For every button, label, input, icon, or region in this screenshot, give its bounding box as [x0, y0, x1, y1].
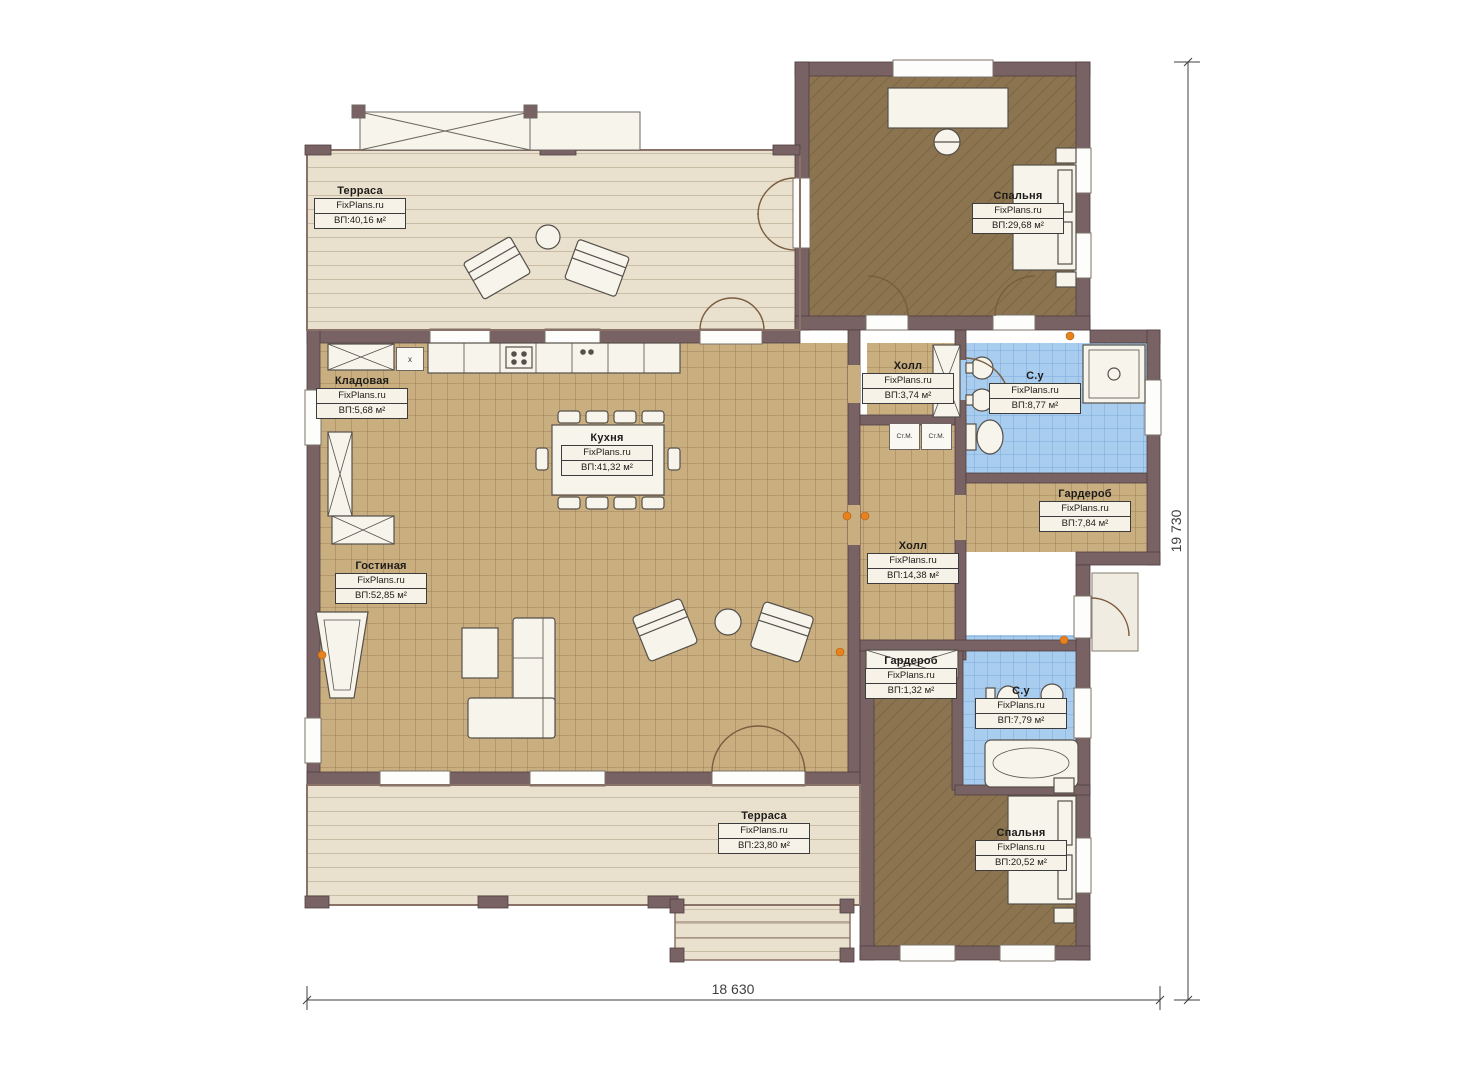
brand-text: FixPlans.ru [975, 840, 1067, 856]
washing-machine-label: Ст.М. [889, 423, 920, 450]
room-area: ВП:20,52 м² [975, 855, 1067, 871]
washing-machine-label: Ст.М. [921, 423, 952, 450]
nightstand [1054, 778, 1074, 793]
room-label-hall-main: Холл FixPlans.ru ВП:14,38 м² [867, 540, 959, 584]
room-label-hall-small: Холл FixPlans.ru ВП:3,74 м² [862, 360, 954, 404]
room-label-storage: Кладовая FixPlans.ru ВП:5,68 м² [316, 375, 408, 419]
coffee-table [462, 628, 498, 678]
room-area: ВП:29,68 м² [972, 218, 1064, 234]
dimension-height-label: 19 730 [1168, 510, 1184, 553]
side-table [715, 609, 741, 635]
nightstand [1056, 148, 1076, 163]
room-name: Спальня [994, 190, 1043, 202]
room-name: Гардероб [884, 655, 938, 667]
brand-text: FixPlans.ru [718, 823, 810, 839]
room-label-terrace-top: Терраса FixPlans.ru ВП:40,16 м² [314, 185, 406, 229]
room-name: С.у [1012, 685, 1030, 697]
room-name: Холл [899, 540, 927, 552]
room-name: Холл [894, 360, 922, 372]
brand-text: FixPlans.ru [316, 388, 408, 404]
room-name: Спальня [997, 827, 1046, 839]
toilet-tank [966, 424, 976, 450]
room-area: ВП:52,85 м² [335, 588, 427, 604]
floor-plan: Терраса FixPlans.ru ВП:40,16 м² Спальня … [0, 0, 1474, 1080]
room-name: Терраса [741, 810, 787, 822]
room-area: ВП:8,77 м² [989, 398, 1081, 414]
terrace-table [536, 225, 560, 249]
dimension-width-label: 18 630 [712, 981, 755, 997]
room-area: ВП:40,16 м² [314, 213, 406, 229]
room-name: Кухня [590, 432, 623, 444]
room-label-bedroom-top: Спальня FixPlans.ru ВП:29,68 м² [972, 190, 1064, 234]
room-label-bathroom-top: С.у FixPlans.ru ВП:8,77 м² [989, 370, 1081, 414]
deck-steps-top [352, 105, 640, 150]
floor-plan-drawing [0, 0, 1474, 1080]
brand-text: FixPlans.ru [314, 198, 406, 214]
room-area: ВП:3,74 м² [862, 388, 954, 404]
room-label-bathroom-bottom: С.у FixPlans.ru ВП:7,79 м² [975, 685, 1067, 729]
brand-text: FixPlans.ru [335, 573, 427, 589]
room-area: ВП:7,79 м² [975, 713, 1067, 729]
room-name: С.у [1026, 370, 1044, 382]
room-name: Гостиная [355, 560, 406, 572]
room-name: Кладовая [335, 375, 389, 387]
room-label-bedroom-bottom: Спальня FixPlans.ru ВП:20,52 м² [975, 827, 1067, 871]
room-label-terrace-bottom: Терраса FixPlans.ru ВП:23,80 м² [718, 810, 810, 854]
room-label-kitchen: Кухня FixPlans.ru ВП:41,32 м² [561, 432, 653, 476]
shower [1083, 345, 1145, 403]
room-area: ВП:1,32 м² [865, 683, 957, 699]
room-area: ВП:41,32 м² [561, 460, 653, 476]
room-area: ВП:5,68 м² [316, 403, 408, 419]
room-area: ВП:14,38 м² [867, 568, 959, 584]
room-name: Гардероб [1058, 488, 1112, 500]
desk [888, 88, 1008, 128]
kitchen-appliance-label: x [396, 347, 424, 371]
brand-text: FixPlans.ru [561, 445, 653, 461]
brand-text: FixPlans.ru [972, 203, 1064, 219]
room-area: ВП:7,84 м² [1039, 516, 1131, 532]
toilet [977, 420, 1003, 454]
room-label-wardrobe-right: Гардероб FixPlans.ru ВП:7,84 м² [1039, 488, 1131, 532]
room-label-wardrobe-small: Гардероб FixPlans.ru ВП:1,32 м² [865, 655, 957, 699]
brand-text: FixPlans.ru [865, 668, 957, 684]
brand-text: FixPlans.ru [975, 698, 1067, 714]
room-area: ВП:23,80 м² [718, 838, 810, 854]
brand-text: FixPlans.ru [1039, 501, 1131, 517]
room-name: Терраса [337, 185, 383, 197]
brand-text: FixPlans.ru [867, 553, 959, 569]
brand-text: FixPlans.ru [989, 383, 1081, 399]
nightstand [1054, 908, 1074, 923]
nightstand [1056, 272, 1076, 287]
brand-text: FixPlans.ru [862, 373, 954, 389]
kitchen-counter [428, 343, 680, 373]
sofa-horizontal [468, 698, 555, 738]
room-label-living-room: Гостиная FixPlans.ru ВП:52,85 м² [335, 560, 427, 604]
